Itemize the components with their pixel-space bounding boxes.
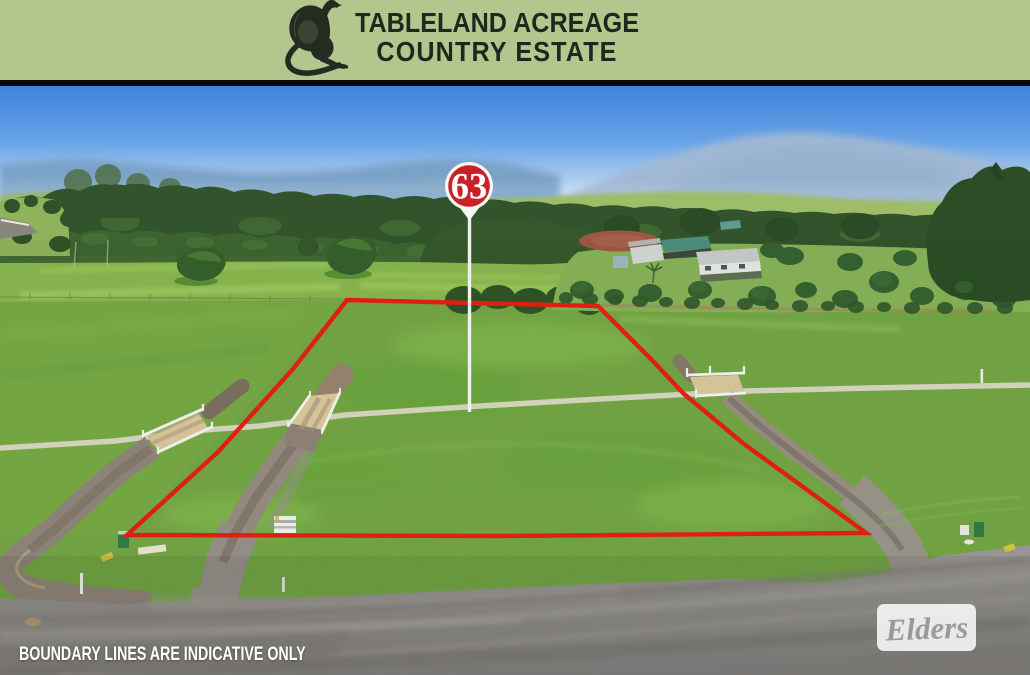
svg-text:Elders: Elders (884, 610, 969, 648)
svg-text:63: 63 (451, 166, 488, 207)
